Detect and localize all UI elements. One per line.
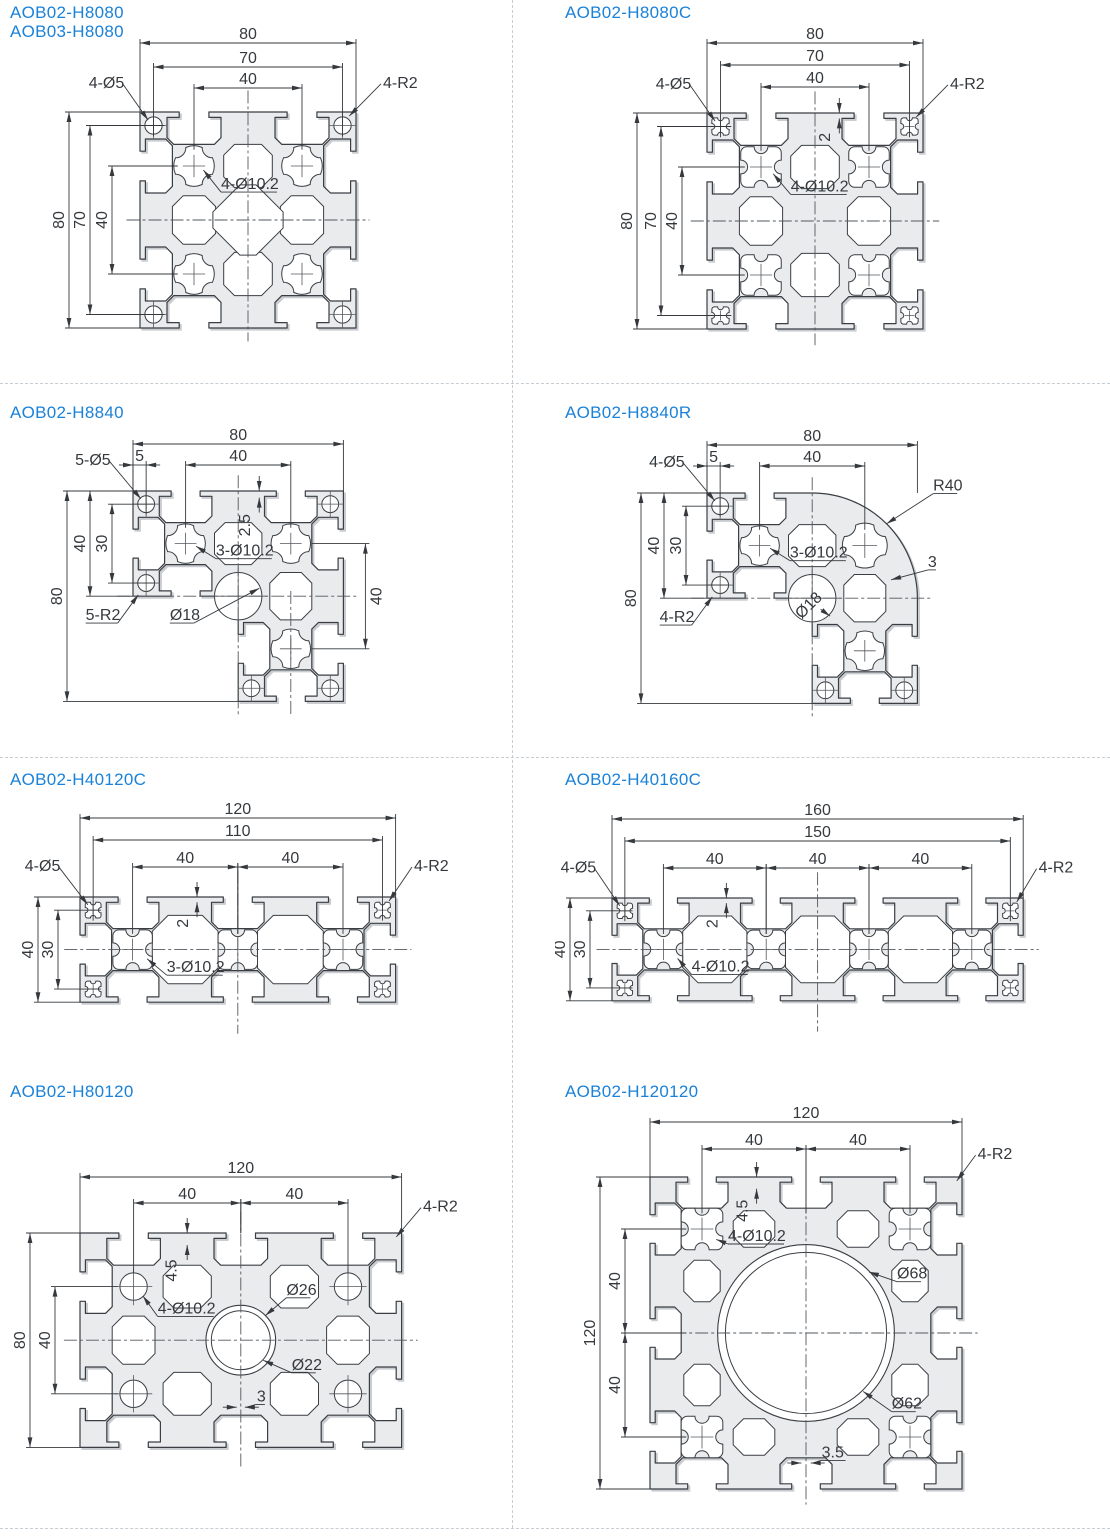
svg-text:40: 40	[176, 850, 194, 867]
technical-drawing-h8080: 8070408070404-Ø54-R24-Ø10.2	[0, 0, 555, 383]
svg-text:80: 80	[49, 587, 66, 605]
svg-text:120: 120	[582, 1320, 599, 1347]
svg-text:4-R2: 4-R2	[423, 1199, 458, 1216]
svg-text:3-Ø10.2: 3-Ø10.2	[216, 543, 274, 560]
svg-text:3: 3	[257, 1388, 266, 1405]
svg-text:40: 40	[555, 940, 569, 958]
svg-text:120: 120	[793, 1105, 820, 1122]
svg-text:Ø26: Ø26	[286, 1282, 316, 1299]
svg-text:5-Ø5: 5-Ø5	[75, 452, 111, 469]
svg-text:40: 40	[806, 70, 824, 87]
svg-text:4-R2: 4-R2	[1039, 860, 1074, 877]
profile-code: AOB02-H8080	[10, 3, 124, 22]
svg-text:4-Ø10.2: 4-Ø10.2	[221, 176, 279, 193]
svg-text:40: 40	[239, 71, 257, 88]
panel-aob02-h8840: AOB02-H8840 80405804030402.55-Ø55-R23-Ø1…	[0, 383, 555, 757]
svg-text:40: 40	[809, 851, 827, 868]
svg-text:40: 40	[607, 1376, 624, 1394]
svg-text:Ø62: Ø62	[892, 1396, 922, 1413]
svg-text:4-Ø5: 4-Ø5	[649, 454, 685, 471]
svg-text:30: 30	[40, 941, 57, 959]
svg-text:4-Ø5: 4-Ø5	[25, 858, 61, 875]
svg-text:80: 80	[229, 427, 247, 444]
panel-aob02-h40120c: AOB02-H40120C 1201104040403024-Ø54-R23-Ø…	[0, 757, 555, 1080]
svg-text:4-Ø10.2: 4-Ø10.2	[728, 1228, 786, 1245]
svg-text:5-R2: 5-R2	[86, 607, 121, 624]
profile-code: AOB02-H40160C	[565, 770, 701, 789]
svg-text:4.5: 4.5	[163, 1259, 180, 1281]
svg-text:150: 150	[804, 824, 831, 841]
svg-text:4-R2: 4-R2	[950, 76, 985, 93]
panel-header: AOB02-H8840R	[565, 403, 691, 422]
profile-code: AOB02-H8840R	[565, 403, 691, 422]
profile-code: AOB02-H8840	[10, 403, 124, 422]
svg-text:4-R2: 4-R2	[978, 1146, 1013, 1163]
technical-drawing-h8080c: 80704080704024-Ø54-R24-Ø10.2	[555, 0, 1110, 383]
svg-text:40: 40	[72, 535, 89, 553]
svg-text:80: 80	[806, 26, 824, 43]
svg-text:40: 40	[912, 851, 930, 868]
svg-text:80: 80	[619, 212, 636, 230]
svg-text:40: 40	[664, 212, 681, 230]
svg-text:80: 80	[239, 26, 257, 43]
svg-text:30: 30	[572, 940, 589, 958]
panel-aob02-h8080c: AOB02-H8080C 80704080704024-Ø54-R24-Ø10.…	[555, 0, 1110, 383]
svg-text:R40: R40	[933, 478, 962, 495]
svg-text:3: 3	[928, 554, 937, 571]
technical-drawing-h8840: 80405804030402.55-Ø55-R23-Ø10.2Ø18	[0, 383, 555, 757]
svg-text:40: 40	[803, 449, 821, 466]
panel-aob02-h80120: AOB02-H80120 120404080404.534-R24-Ø10.2Ø…	[0, 1080, 555, 1539]
svg-text:40: 40	[706, 851, 724, 868]
svg-text:Ø22: Ø22	[292, 1357, 322, 1374]
svg-text:4-Ø10.2: 4-Ø10.2	[791, 178, 849, 195]
svg-text:3-Ø10.2: 3-Ø10.2	[790, 545, 848, 562]
svg-text:40: 40	[607, 1272, 624, 1290]
svg-text:2.5: 2.5	[237, 514, 254, 536]
svg-text:4-Ø10.2: 4-Ø10.2	[692, 959, 750, 976]
profile-code: AOB03-H8080	[10, 22, 124, 41]
profile-code: AOB02-H40120C	[10, 770, 146, 789]
panel-header: AOB02-H80120	[10, 1082, 134, 1101]
panel-header: AOB02-H40160C	[565, 770, 701, 789]
svg-text:40: 40	[745, 1132, 763, 1149]
svg-text:4-R2: 4-R2	[660, 609, 695, 626]
catalog-page: AOB02-H8080 AOB03-H8080 8070408070404-Ø5…	[0, 0, 1110, 1539]
svg-text:4-Ø5: 4-Ø5	[561, 860, 597, 877]
svg-text:40: 40	[178, 1186, 196, 1203]
technical-drawing-h40160c: 160150404040403024-Ø54-R24-Ø10.2	[555, 757, 1110, 1080]
svg-text:80: 80	[51, 211, 68, 229]
panel-header: AOB02-H8080 AOB03-H8080	[10, 3, 124, 41]
svg-text:Ø68: Ø68	[897, 1266, 927, 1283]
svg-text:40: 40	[37, 1331, 54, 1349]
svg-text:2: 2	[175, 919, 192, 928]
row-divider-1	[0, 383, 1110, 384]
svg-text:5: 5	[135, 448, 144, 465]
svg-text:4-R2: 4-R2	[414, 858, 449, 875]
svg-text:40: 40	[286, 1186, 304, 1203]
svg-text:4-R2: 4-R2	[383, 75, 418, 92]
panel-header: AOB02-H120120	[565, 1082, 698, 1101]
technical-drawing-h120120: 120404012040404.53.54-R24-Ø10.2Ø68Ø62	[555, 1080, 1110, 1539]
panel-aob02-h40160c: AOB02-H40160C 160150404040403024-Ø54-R24…	[555, 757, 1110, 1080]
svg-text:3-Ø10.2: 3-Ø10.2	[167, 959, 225, 976]
svg-text:Ø18: Ø18	[170, 607, 200, 624]
panel-aob02-h8080: AOB02-H8080 AOB03-H8080 8070408070404-Ø5…	[0, 0, 555, 383]
svg-text:40: 40	[849, 1132, 867, 1149]
svg-text:40: 40	[368, 587, 385, 605]
svg-text:4-Ø5: 4-Ø5	[89, 75, 125, 92]
technical-drawing-h8840r: 804058040304-Ø5R4033-Ø10.2Ø184-R2	[555, 383, 1110, 757]
technical-drawing-h40120c: 1201104040403024-Ø54-R23-Ø10.2	[0, 757, 555, 1080]
svg-text:70: 70	[806, 48, 824, 65]
svg-text:160: 160	[804, 802, 831, 819]
svg-text:110: 110	[225, 823, 251, 840]
row-divider-2	[0, 757, 1110, 758]
svg-text:70: 70	[239, 50, 257, 67]
svg-text:2: 2	[817, 133, 834, 142]
svg-text:80: 80	[623, 589, 640, 607]
svg-text:30: 30	[94, 535, 111, 553]
profile-code: AOB02-H80120	[10, 1082, 134, 1101]
panel-header: AOB02-H8080C	[565, 3, 691, 22]
profile-code: AOB02-H8080C	[565, 3, 691, 22]
panel-aob02-h8840r: AOB02-H8840R 804058040304-Ø5R4033-Ø10.2Ø…	[555, 383, 1110, 757]
svg-text:40: 40	[94, 211, 111, 229]
page-bottom-divider	[0, 1528, 1110, 1529]
svg-text:40: 40	[282, 850, 300, 867]
svg-text:4.5: 4.5	[735, 1200, 752, 1222]
svg-text:2: 2	[704, 919, 721, 928]
profile-code: AOB02-H120120	[565, 1082, 698, 1101]
svg-text:80: 80	[803, 428, 821, 445]
panel-header: AOB02-H40120C	[10, 770, 146, 789]
svg-text:4-Ø5: 4-Ø5	[656, 76, 692, 93]
svg-text:120: 120	[224, 801, 251, 818]
svg-text:4-Ø10.2: 4-Ø10.2	[158, 1301, 216, 1318]
svg-text:30: 30	[668, 537, 685, 555]
svg-text:40: 40	[646, 537, 663, 555]
technical-drawing-h80120: 120404080404.534-R24-Ø10.2Ø26Ø22	[0, 1080, 555, 1539]
panel-header: AOB02-H8840	[10, 403, 124, 422]
svg-text:40: 40	[229, 448, 247, 465]
svg-text:40: 40	[20, 941, 37, 959]
svg-text:3.5: 3.5	[822, 1445, 844, 1462]
column-divider	[512, 0, 513, 1528]
svg-text:120: 120	[227, 1160, 254, 1177]
panel-aob02-h120120: AOB02-H120120 120404012040404.53.54-R24-…	[555, 1080, 1110, 1539]
svg-text:5: 5	[709, 449, 718, 466]
svg-text:80: 80	[12, 1331, 29, 1349]
svg-text:70: 70	[72, 211, 89, 229]
svg-text:70: 70	[643, 212, 660, 230]
